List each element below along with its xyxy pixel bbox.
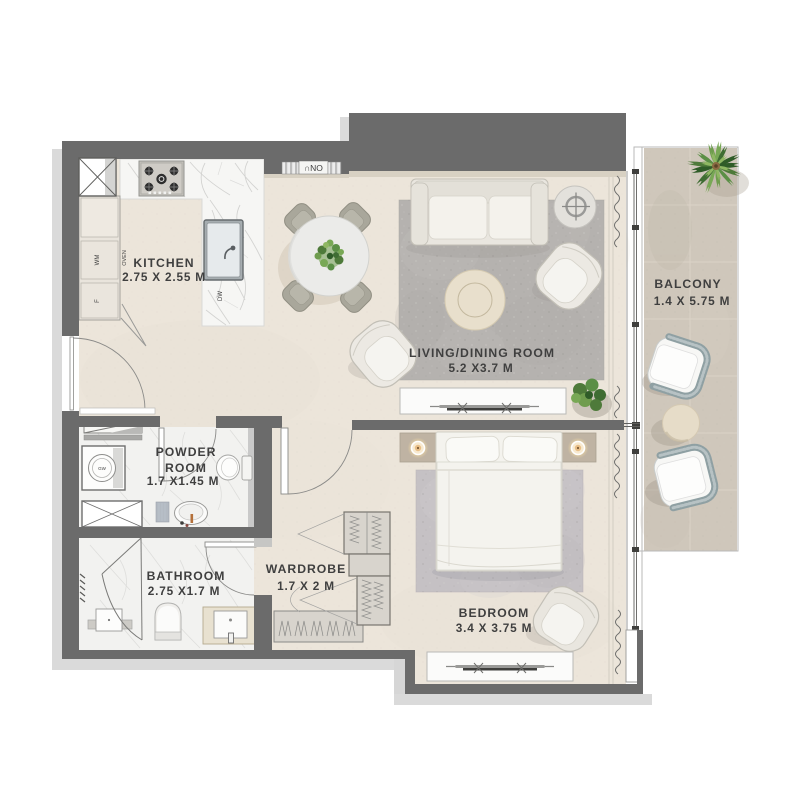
svg-text:3.4 X 3.75 M: 3.4 X 3.75 M bbox=[456, 621, 533, 635]
svg-text:LIVING/DINING ROOM: LIVING/DINING ROOM bbox=[409, 346, 555, 360]
svg-text:BEDROOM: BEDROOM bbox=[459, 606, 530, 620]
svg-text:2.75 X 2.55 M: 2.75 X 2.55 M bbox=[122, 270, 206, 284]
svg-text:WARDROBE: WARDROBE bbox=[266, 562, 346, 576]
svg-text:BATHROOM: BATHROOM bbox=[147, 569, 226, 583]
svg-text:POWDER: POWDER bbox=[156, 445, 217, 459]
svg-text:DW: DW bbox=[218, 291, 224, 301]
svg-text:2.75 X1.7 M: 2.75 X1.7 M bbox=[148, 584, 220, 598]
svg-text:1.7 X1.45 M: 1.7 X1.45 M bbox=[147, 474, 219, 488]
svg-text:ROOM: ROOM bbox=[165, 461, 207, 475]
svg-text:WM: WM bbox=[95, 255, 101, 266]
svg-text:∩NO: ∩NO bbox=[304, 163, 323, 173]
svg-text:1.7 X 2 M: 1.7 X 2 M bbox=[277, 579, 335, 593]
svg-text:5.2 X3.7 M: 5.2 X3.7 M bbox=[448, 361, 513, 375]
svg-text:GW: GW bbox=[98, 466, 107, 471]
svg-text:F: F bbox=[95, 299, 101, 303]
svg-text:KITCHEN: KITCHEN bbox=[133, 256, 194, 270]
svg-text:1.4 X 5.75 M: 1.4 X 5.75 M bbox=[654, 294, 731, 308]
svg-text:BALCONY: BALCONY bbox=[654, 277, 721, 291]
svg-text:OVEN: OVEN bbox=[122, 250, 128, 266]
